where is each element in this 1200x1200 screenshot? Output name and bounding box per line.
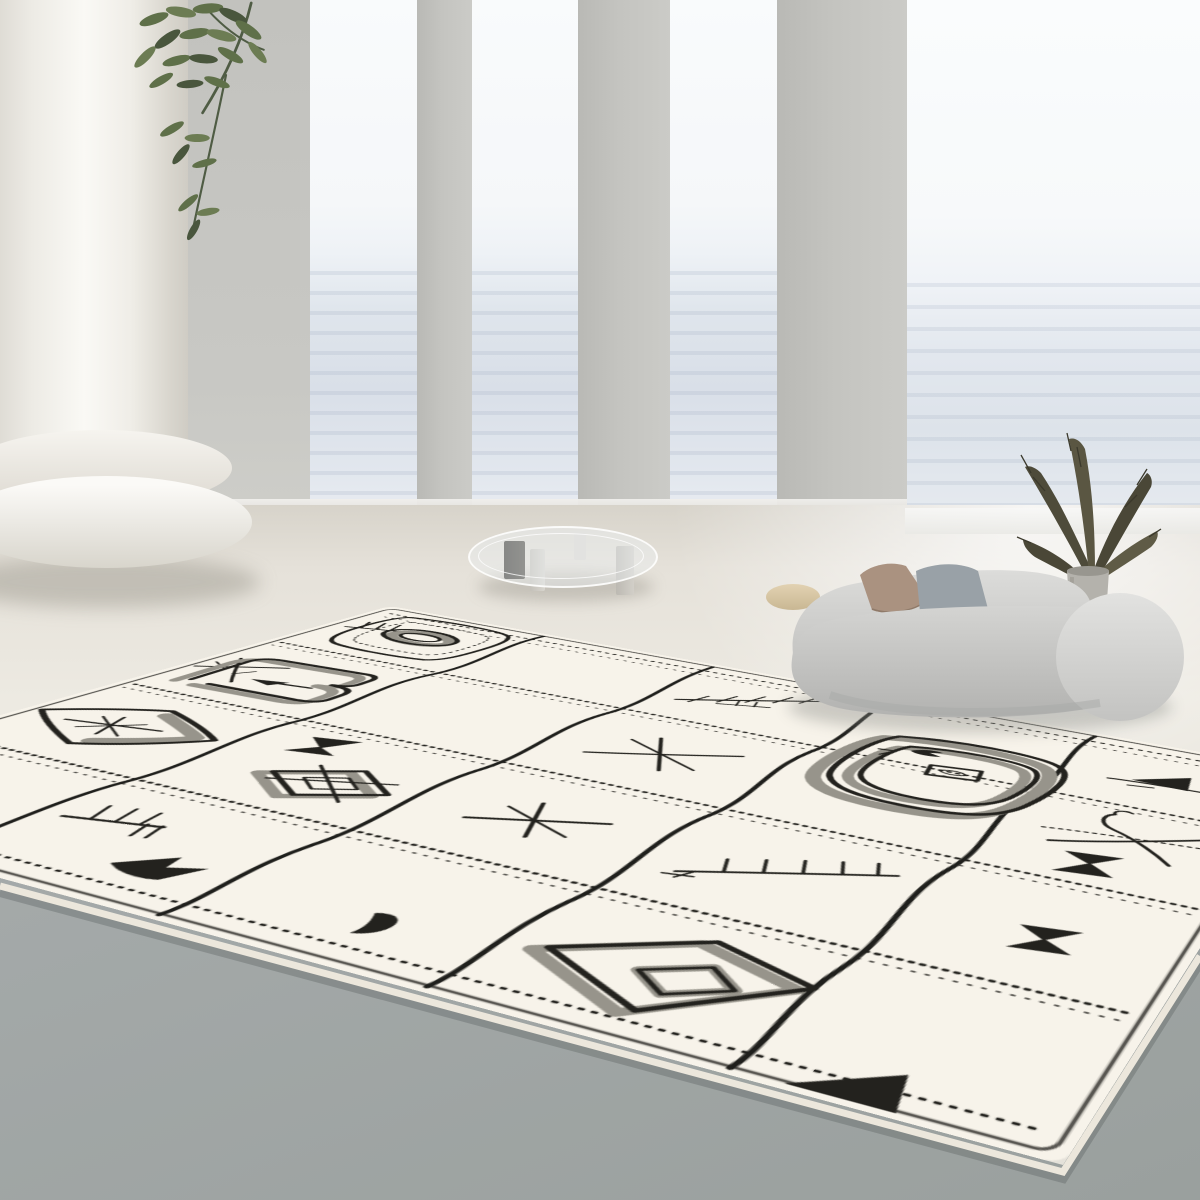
- sofa-arm: [1056, 593, 1184, 721]
- curved-sofa-svg: [770, 535, 1200, 845]
- living-room-scene: [0, 0, 1200, 1200]
- coffee-table-glass-rim: [478, 533, 644, 579]
